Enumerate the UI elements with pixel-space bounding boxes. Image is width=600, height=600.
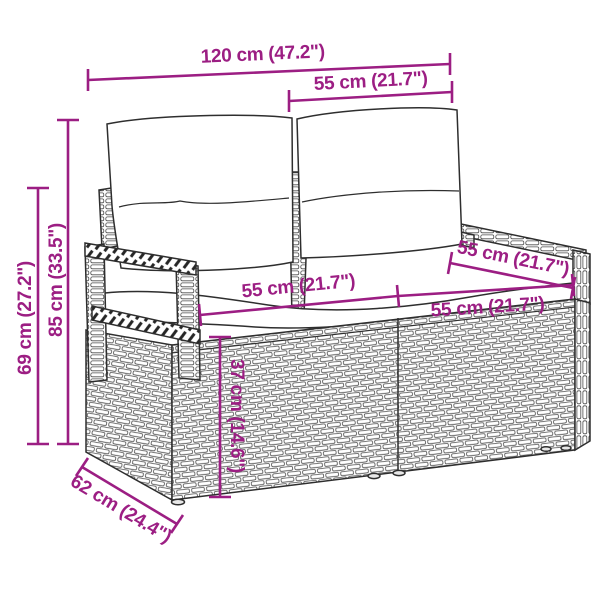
left-armrest-front-post [176,262,200,380]
right-armrest-post [573,250,590,304]
back-cushion-right [297,108,462,258]
back-cushions [107,108,462,271]
dim-label-seat-height: 37 cm (14.6") [226,359,247,473]
foot [393,470,405,475]
dim-overall-height: 85 cm (33.5") [46,120,79,444]
foot [172,499,185,505]
foot [368,473,380,478]
dim-back-width: 55 cm (21.7") [289,68,452,112]
back-cushion-left [107,115,293,270]
product-dimension-diagram: 120 cm (47.2") 55 cm (21.7") 85 cm (33.5… [0,0,600,600]
dim-label-overall-width: 120 cm (47.2") [200,41,325,67]
dim-label-overall-height: 85 cm (33.5") [46,223,67,337]
sofa-dimension-drawing: 120 cm (47.2") 55 cm (21.7") 85 cm (33.5… [0,0,600,600]
base-right-face [575,299,590,450]
dim-armrest-height: 69 cm (27.2") [15,188,49,444]
foot [561,446,571,451]
dim-label-back-width: 55 cm (21.7") [313,68,428,95]
dim-label-armrest-height: 69 cm (27.2") [15,261,36,375]
foot [541,447,551,452]
